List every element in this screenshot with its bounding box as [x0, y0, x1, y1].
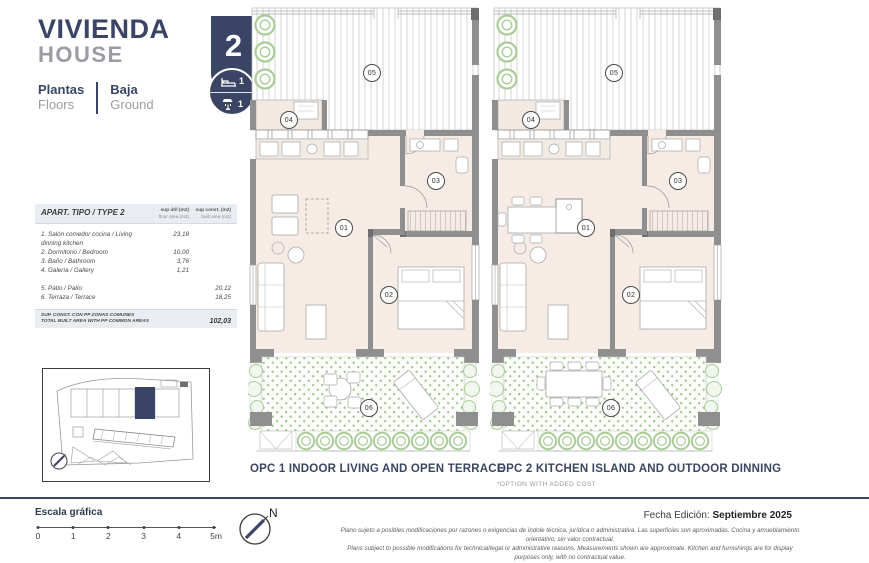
- plan-caption-note: *OPTION WITH ADDED COST: [497, 481, 596, 488]
- floor-plan-opc1: 05 04 03 01 02 06: [248, 5, 482, 457]
- divider: [96, 82, 98, 114]
- col-built-area: sup const. (m2) built area (m2): [189, 208, 231, 220]
- header: VIVIENDA HOUSE Plantas Floors Baja Groun…: [38, 16, 170, 114]
- room-number-badge: 05: [605, 64, 623, 82]
- room-number-badge: 03: [669, 172, 687, 190]
- footer-divider: [0, 497, 869, 499]
- room-number-badge: 03: [427, 172, 445, 190]
- bed-icon: [220, 76, 237, 87]
- keyplan-compass-icon: [51, 453, 67, 469]
- svg-text:N: N: [269, 506, 278, 520]
- disclaimer-es: Plano sujeto a posibles modificaciones p…: [335, 527, 805, 545]
- table-row: 4. Galería / Gallery 1,21: [41, 266, 231, 275]
- shower-icon: [221, 98, 236, 110]
- table-title: APART. TIPO / TYPE 2: [41, 208, 147, 220]
- scale-label: Escala gráfica: [35, 507, 102, 518]
- table-row: 3. Baño / Bathroom 3,76: [41, 257, 231, 266]
- floor-selector: Plantas Floors Baja Ground: [38, 82, 170, 114]
- table-row: 2. Dormitorio / Bedroom 10,00: [41, 248, 231, 257]
- table-total-row: SUP. CONST. CON PP ZONAS COMUNES TOTAL B…: [35, 309, 237, 328]
- area-summary-table: APART. TIPO / TYPE 2 sup útil (m2) floor…: [35, 204, 237, 328]
- edition-date: Fecha Edición: Septiembre 2025: [644, 510, 792, 521]
- key-plan: [42, 368, 210, 482]
- table-row-gap: [41, 275, 231, 284]
- compass: N: [236, 505, 282, 552]
- table-body: 1. Salón comedor cocina / Living dinning…: [35, 224, 237, 309]
- disclaimer: Plano sujeto a posibles modificaciones p…: [335, 527, 805, 563]
- page-subtitle: HOUSE: [38, 43, 170, 67]
- scale-bar: 0 1 2 3 4 5m: [38, 523, 216, 543]
- room-number-badge: 06: [602, 399, 620, 417]
- plan-caption-opc2: OPC 2 KITCHEN ISLAND AND OUTDOOR DINNING: [497, 463, 781, 475]
- table-row: 6. Terraza / Terrace 18,25: [41, 293, 231, 302]
- table-row: 5. Patio / Patio 20,12: [41, 284, 231, 293]
- page-title: VIVIENDA: [38, 16, 170, 43]
- room-number-badge: 02: [622, 286, 640, 304]
- room-number-badge: 05: [363, 64, 381, 82]
- room-number-badge: 04: [280, 111, 298, 129]
- room-number-badge: 06: [360, 399, 378, 417]
- room-number-badge: 01: [577, 219, 595, 237]
- compass-icon: N: [236, 505, 282, 547]
- site-plan-svg: [43, 369, 207, 479]
- room-number-badge: 04: [522, 111, 540, 129]
- floor-plan-opc2: 05 04 03 01 02 06: [490, 5, 724, 457]
- col-floor-area: sup útil (m2) floor area (m2): [147, 208, 189, 220]
- room-number-badge: 02: [380, 286, 398, 304]
- page: { "header": { "title": "VIVIENDA", "subt…: [0, 0, 869, 550]
- plan-caption-opc1: OPC 1 INDOOR LIVING AND OPEN TERRACE: [250, 463, 505, 475]
- table-row: 1. Salón comedor cocina / Living dinning…: [41, 230, 231, 248]
- floors-label: Plantas Floors: [38, 83, 84, 113]
- floor-name: Baja Ground: [110, 83, 153, 113]
- room-number-badge: 01: [335, 219, 353, 237]
- total-built-area: 102,03: [210, 318, 231, 325]
- disclaimer-en: Plans subject to possible modifications …: [335, 545, 805, 563]
- table-header: APART. TIPO / TYPE 2 sup útil (m2) floor…: [35, 204, 237, 224]
- highlighted-unit: [135, 387, 155, 419]
